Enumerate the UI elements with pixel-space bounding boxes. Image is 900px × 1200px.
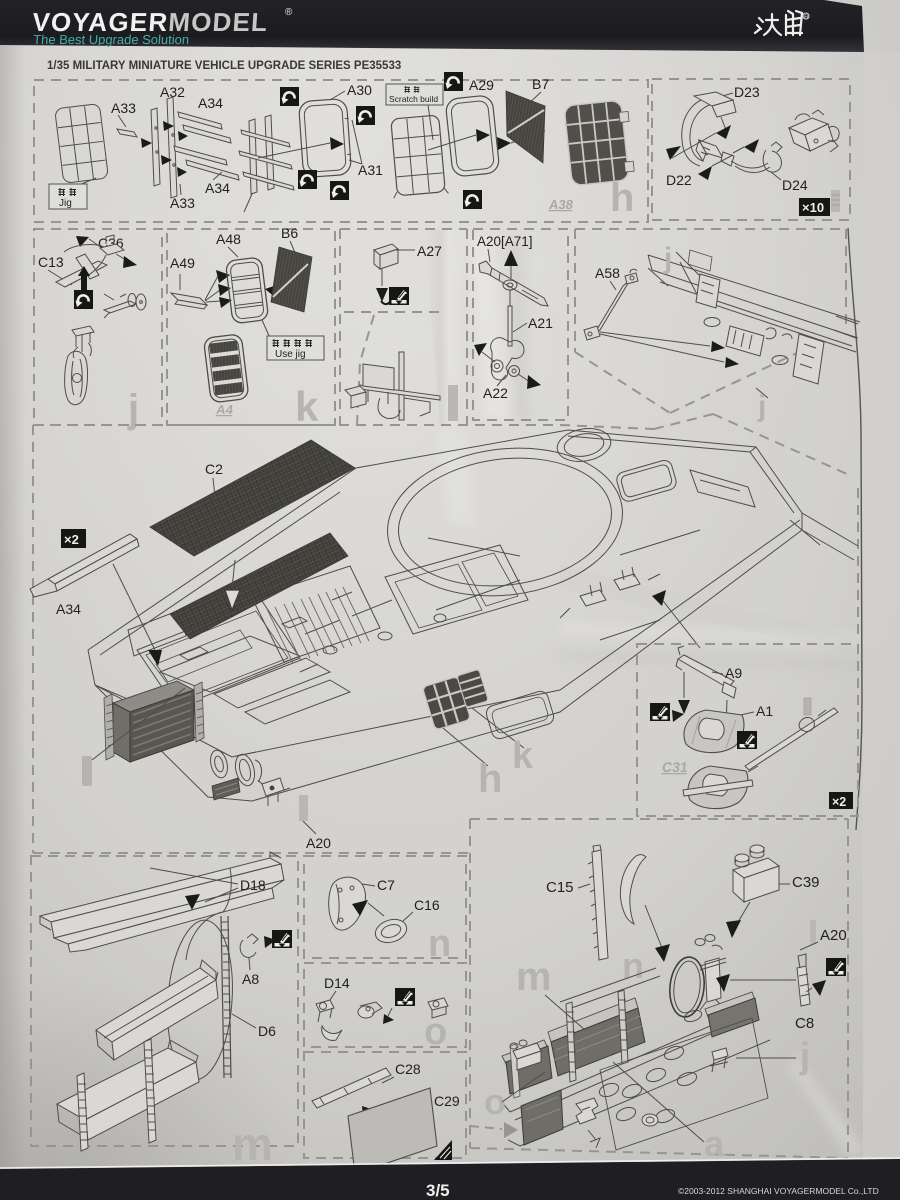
svg-text:A33: A33: [111, 100, 136, 116]
svg-text:A34: A34: [198, 95, 223, 111]
svg-text:×2: ×2: [64, 532, 79, 547]
svg-text:R: R: [804, 14, 809, 21]
svg-text:D22: D22: [666, 172, 692, 188]
svg-text:A20: A20: [306, 835, 331, 851]
svg-text:Use jig: Use jig: [275, 349, 306, 360]
svg-text:n: n: [428, 923, 451, 965]
svg-text:k: k: [295, 383, 319, 430]
svg-text:j: j: [663, 242, 672, 275]
svg-text:A29: A29: [469, 77, 494, 93]
svg-text:D18: D18: [240, 877, 266, 893]
svg-text:A34: A34: [205, 180, 230, 196]
svg-text:Scratch build: Scratch build: [389, 94, 438, 104]
svg-text:A9: A9: [725, 665, 742, 681]
svg-text:n: n: [622, 945, 644, 986]
svg-text:A20[A71]: A20[A71]: [477, 234, 533, 249]
svg-text:A33: A33: [170, 195, 195, 211]
svg-text:A34: A34: [56, 601, 81, 617]
svg-text:A20: A20: [820, 927, 847, 944]
svg-text:C8: C8: [795, 1015, 814, 1032]
svg-text:©2003-2012 SHANGHAI VOYAGERMOD: ©2003-2012 SHANGHAI VOYAGERMODEL Co.,LTD: [678, 1186, 879, 1196]
svg-text:A58: A58: [595, 265, 620, 281]
svg-text:3/5: 3/5: [426, 1181, 450, 1200]
svg-text:A38: A38: [548, 197, 574, 212]
svg-text:k: k: [512, 735, 534, 777]
svg-text:®: ®: [285, 7, 293, 18]
svg-text:A27: A27: [417, 243, 442, 259]
svg-text:a: a: [704, 1123, 725, 1164]
svg-text:D6: D6: [258, 1023, 276, 1039]
svg-text:C13: C13: [38, 254, 64, 270]
svg-text:C2: C2: [205, 461, 223, 477]
svg-text:A49: A49: [170, 255, 195, 271]
svg-text:C28: C28: [395, 1061, 421, 1077]
svg-text:m: m: [516, 955, 552, 999]
svg-text:h: h: [610, 176, 634, 220]
svg-text:D14: D14: [324, 975, 350, 991]
svg-text:A1: A1: [756, 703, 773, 719]
svg-text:1/35 MILITARY MINIATURE VEHICL: 1/35 MILITARY MINIATURE VEHICLE UPGRADE …: [47, 60, 401, 72]
svg-text:o: o: [424, 1011, 447, 1053]
svg-text:×2: ×2: [832, 795, 846, 809]
svg-text:A48: A48: [216, 231, 241, 247]
svg-text:B7: B7: [532, 76, 549, 92]
svg-text:C16: C16: [414, 897, 440, 913]
svg-text:A22: A22: [483, 385, 508, 401]
svg-text:h: h: [478, 757, 502, 801]
svg-text:A30: A30: [347, 82, 372, 98]
svg-text:C39: C39: [792, 874, 820, 891]
svg-text:The Best Upgrade Solution: The Best Upgrade Solution: [33, 32, 190, 47]
svg-text:m: m: [232, 1118, 273, 1170]
svg-text:C7: C7: [377, 877, 395, 893]
svg-text:D23: D23: [734, 84, 760, 100]
svg-text:j: j: [799, 1035, 810, 1076]
svg-text:A21: A21: [528, 315, 553, 331]
svg-text:C15: C15: [546, 879, 574, 896]
svg-text:B6: B6: [281, 225, 298, 241]
svg-text:C29: C29: [434, 1093, 460, 1109]
svg-text:A8: A8: [242, 971, 259, 987]
svg-text:Jig: Jig: [59, 198, 72, 209]
svg-text:A4: A4: [215, 402, 234, 417]
svg-text:D24: D24: [782, 177, 808, 193]
svg-text:C31: C31: [661, 759, 689, 775]
svg-text:×10: ×10: [802, 200, 824, 215]
